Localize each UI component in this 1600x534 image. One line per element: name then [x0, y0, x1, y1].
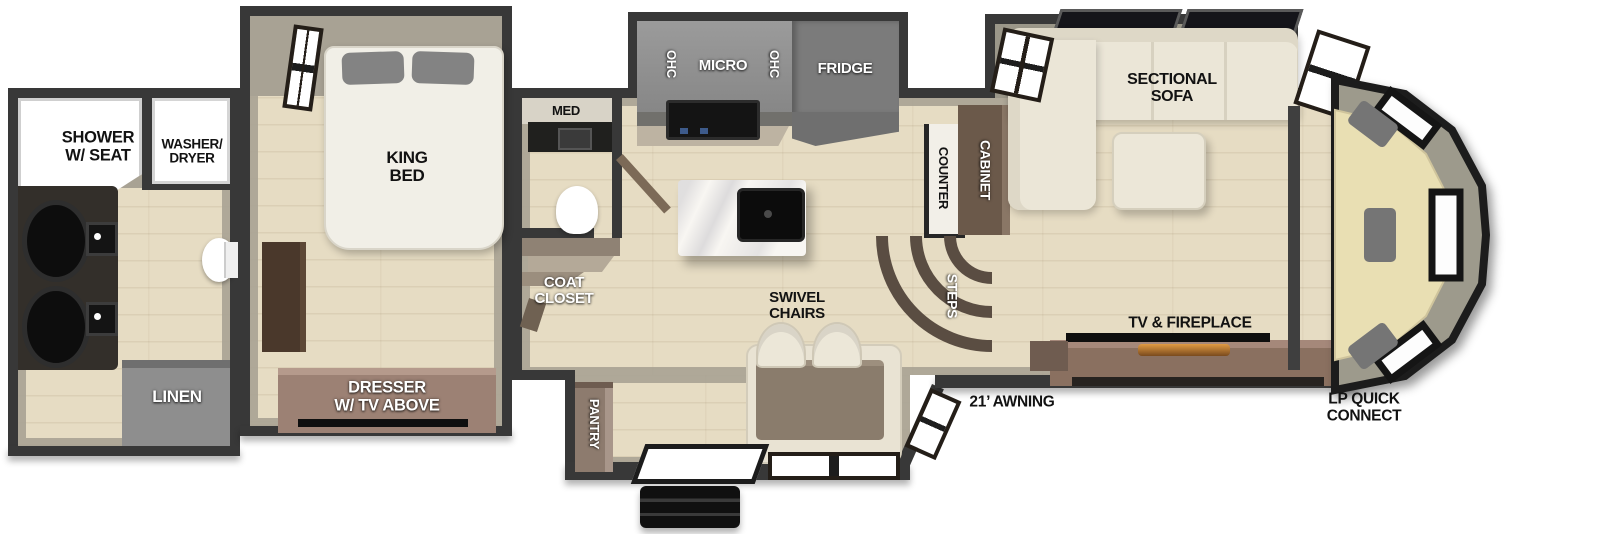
vanity-sink — [22, 286, 90, 368]
wardrobe — [262, 242, 306, 352]
kitchen-slide-wall — [628, 12, 908, 21]
faucet-icon — [86, 302, 118, 336]
label-steps: STEPS — [945, 274, 960, 318]
rear-pillow — [1364, 208, 1396, 262]
label-shower: SHOWER W/ SEAT — [62, 129, 134, 164]
cooktop — [666, 100, 760, 140]
kitchen-slide-wall — [899, 12, 908, 98]
cooktop-burner-icon — [700, 128, 708, 134]
console-rug — [1072, 377, 1324, 386]
bed-pillow — [341, 51, 404, 85]
label-med: MED — [552, 104, 580, 118]
rv-floorplan: SHOWER W/ SEAT WASHER/ DRYER LINEN KING … — [0, 0, 1600, 534]
tv-strip — [298, 419, 468, 427]
label-lp-quick-connect: LP QUICK CONNECT — [1327, 391, 1402, 424]
ottoman — [1112, 132, 1206, 210]
wall — [142, 98, 152, 190]
label-pantry: PANTRY — [587, 399, 601, 449]
coat-closet-shelf — [528, 256, 614, 272]
vanity-sink — [22, 200, 90, 282]
island-faucet-icon — [764, 210, 772, 218]
bed-pillow — [411, 51, 474, 85]
faucet-icon — [94, 233, 101, 240]
rear-divider-wall — [1288, 106, 1300, 370]
wall — [8, 446, 240, 456]
halfbath-sink — [558, 128, 592, 150]
label-counter: COUNTER — [936, 147, 950, 209]
window — [904, 388, 961, 460]
label-tv-fireplace: TV & FIREPLACE — [1128, 316, 1251, 333]
label-awning: 21’ AWNING — [969, 395, 1054, 412]
label-micro: MICRO — [699, 58, 748, 74]
label-ohc-left: OHC — [664, 50, 678, 78]
kitchen-slide-wall — [628, 12, 637, 98]
tv-strip — [1066, 333, 1270, 342]
entry-door — [631, 444, 770, 484]
entry-steps — [846, 228, 996, 360]
cooktop-burner-icon — [680, 128, 688, 134]
faucet-icon — [86, 222, 118, 256]
label-cabinet: CABINET — [978, 140, 993, 200]
coat-closet — [522, 238, 620, 256]
rear-cap — [1320, 70, 1492, 400]
wall — [240, 6, 512, 16]
wall — [512, 88, 522, 380]
rear-window — [1432, 192, 1460, 278]
faucet-icon — [94, 313, 101, 320]
label-sectional-sofa: SECTIONAL SOFA — [1127, 71, 1217, 105]
label-ohc-right: OHC — [767, 50, 781, 78]
window — [768, 452, 900, 480]
label-linen: LINEN — [152, 388, 202, 406]
label-washer-dryer: WASHER/ DRYER — [162, 138, 223, 167]
halfbath-toilet — [556, 186, 598, 234]
label-coat-closet: COAT CLOSET — [534, 275, 593, 307]
label-fridge: FRIDGE — [818, 61, 873, 77]
toilet-tank — [224, 242, 238, 278]
dinette-table — [756, 360, 884, 440]
entry-door-steps — [640, 486, 740, 528]
fireplace-glow — [1138, 344, 1230, 356]
wall — [8, 88, 240, 98]
label-dresser: DRESSER W/ TV ABOVE — [334, 379, 439, 414]
label-king-bed: KING BED — [386, 149, 427, 185]
wall — [8, 88, 18, 456]
console-side-cabinet — [1030, 341, 1068, 371]
wall — [240, 6, 250, 436]
label-swivel-chairs: SWIVEL CHAIRS — [769, 290, 825, 322]
